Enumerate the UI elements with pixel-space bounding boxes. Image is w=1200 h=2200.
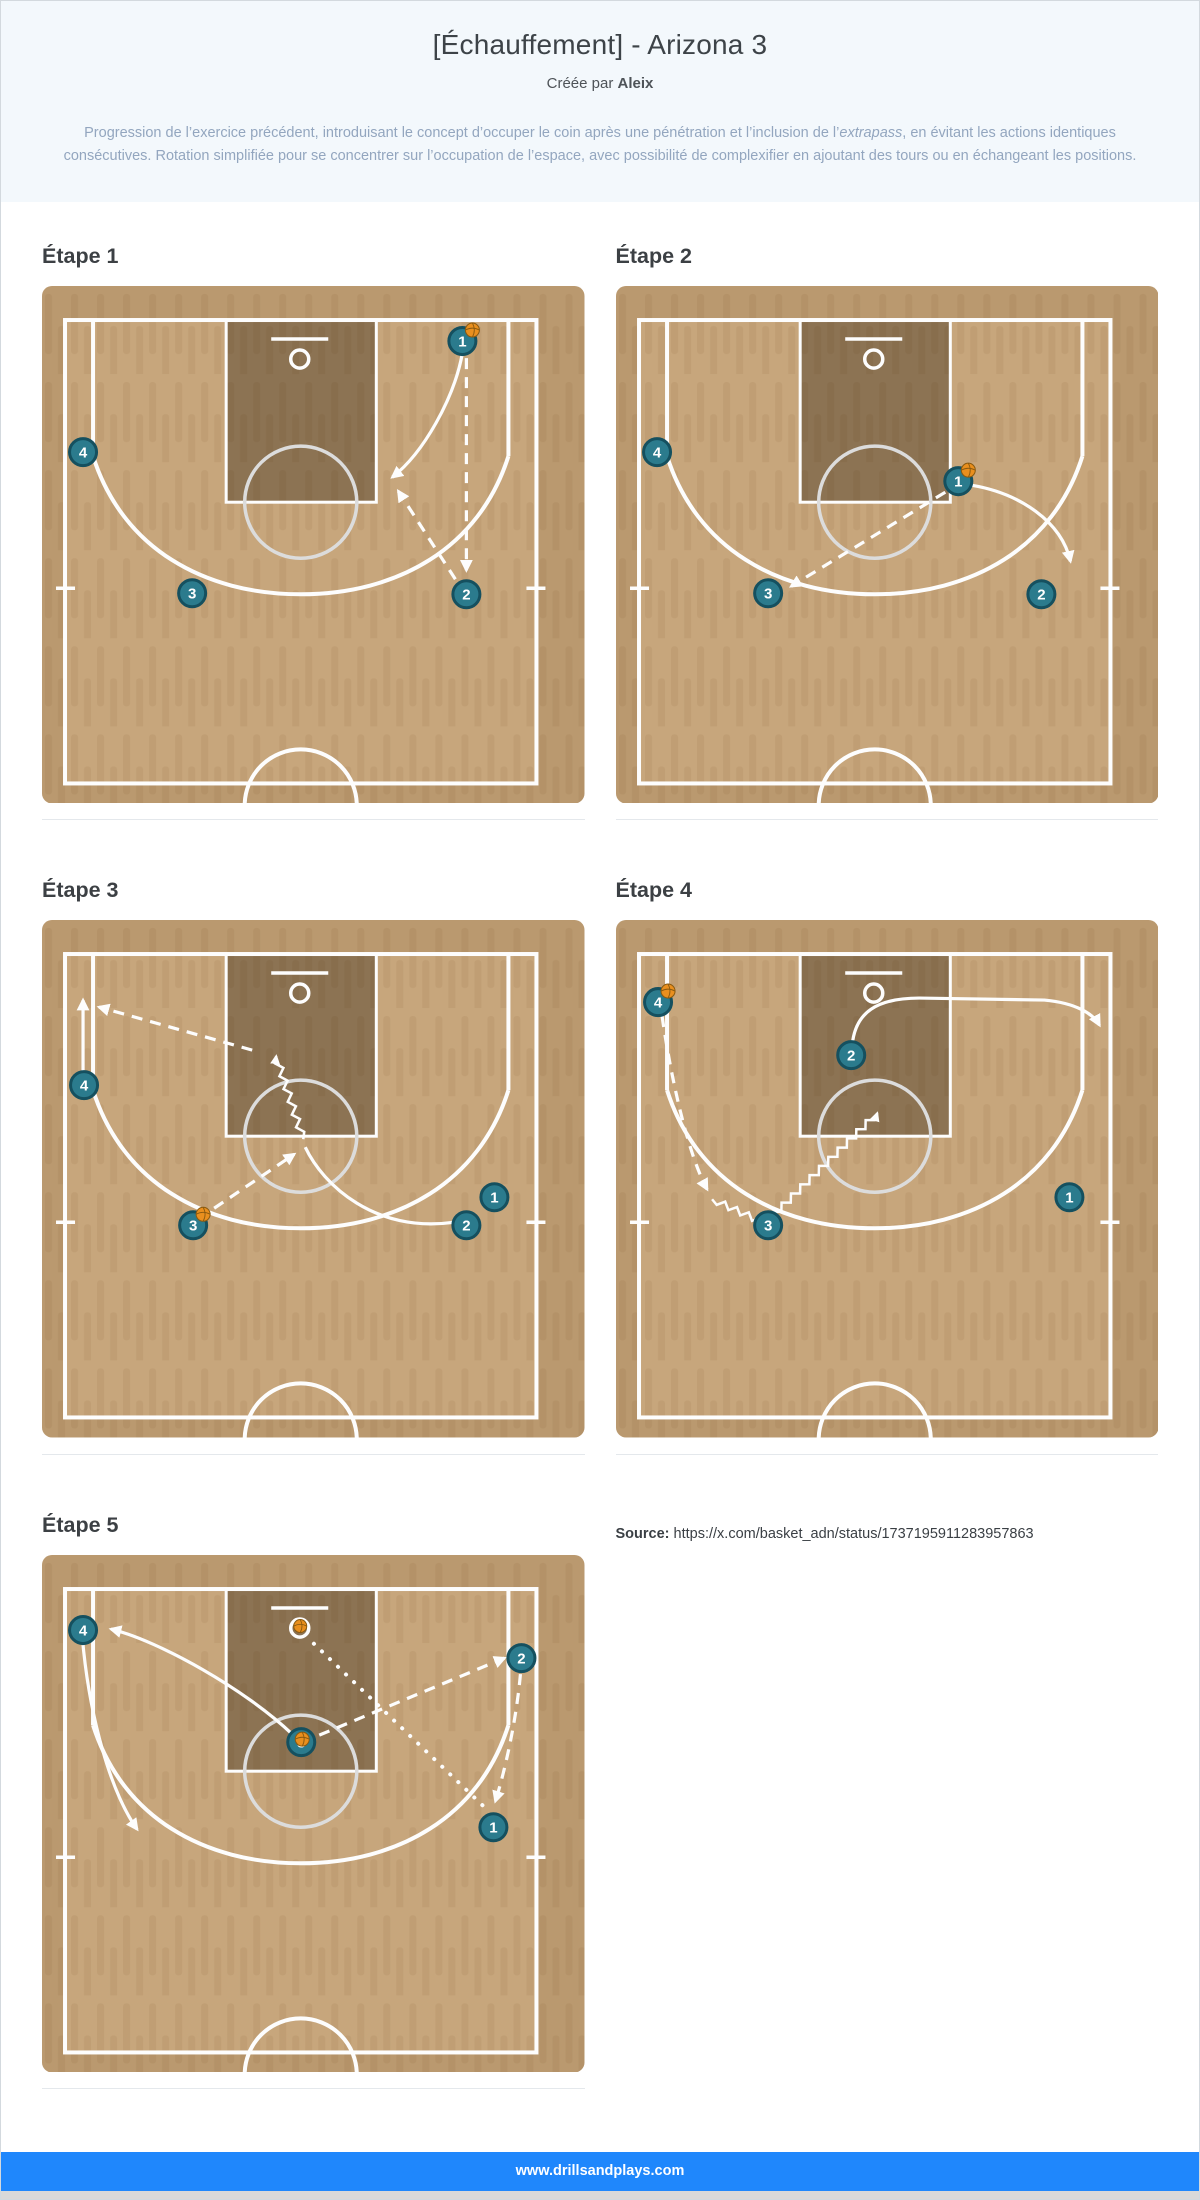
player-token-3: 3 [288,1729,315,1756]
player-token-1: 1 [1055,1184,1082,1211]
step-title: Étape 2 [616,243,1159,269]
court-diagram-etape-2: 4132 [616,286,1159,803]
painted-key [800,320,950,502]
footer-bar: www.drillsandplays.com [1,2152,1199,2191]
source-cell: Source: https://x.com/basket_adn/status/… [616,1455,1159,2089]
player-number: 4 [652,445,661,462]
step-etape-3: Étape 3 4312 [42,820,585,1454]
credit-line: Créée par Aleix [1,75,1199,93]
player-number: 1 [490,1190,498,1207]
player-number: 2 [462,1218,470,1235]
player-number: 4 [653,995,662,1012]
basketball-icon [961,463,975,477]
page-header: [Échauffement] - Arizona 3 Créée par Ale… [1,1,1199,202]
source-url[interactable]: https://x.com/basket_adn/status/17371959… [674,1526,1034,1542]
player-token-3: 3 [754,1212,781,1239]
step-title: Étape 3 [42,877,585,903]
court-diagram-etape-5: 4231 [42,1555,585,2072]
player-number: 1 [458,333,466,350]
basketball-icon [295,1732,309,1746]
page-title: [Échauffement] - Arizona 3 [1,28,1199,62]
step-etape-4: Étape 4 4231 [616,820,1159,1454]
basketball-icon [661,985,675,999]
description-part: Progression de l’exercice précédent, int… [84,125,839,141]
player-token-2: 2 [1027,581,1054,608]
step-etape-5: Étape 5 4231 [42,1455,585,2089]
step-title: Étape 4 [616,877,1159,903]
description-italic: extrapass [839,125,902,141]
player-number: 2 [517,1650,525,1667]
player-number: 4 [80,1078,89,1095]
basketball-icon [294,1619,307,1632]
court-diagram-etape-3: 4312 [42,920,585,1437]
player-number: 2 [1037,587,1045,604]
source-line: Source: https://x.com/basket_adn/status/… [616,1525,1159,1544]
player-number: 1 [489,1820,497,1837]
player-number: 1 [954,474,962,491]
player-number: 2 [462,587,470,604]
player-token-3: 3 [754,580,781,607]
player-token-4: 4 [70,1616,97,1643]
step-title: Étape 1 [42,243,585,269]
player-number: 4 [79,1622,88,1639]
player-number: 3 [189,1218,197,1235]
footer-strip [1,2191,1199,2199]
step-etape-1: Étape 1 1432 [42,202,585,820]
basketball-icon [465,323,479,337]
steps-grid: Étape 1 1432 Étape 2 4132 Étape 3 4312 É… [1,202,1199,2089]
court-diagram-etape-4: 4231 [616,920,1159,1437]
player-token-2: 2 [453,1212,480,1239]
court-diagram-etape-1: 1432 [42,286,585,803]
step-etape-2: Étape 2 4132 [616,202,1159,820]
step-title: Étape 5 [42,1512,585,1538]
credit-prefix: Créée par [547,75,614,92]
player-number: 2 [847,1048,855,1065]
painted-key [800,954,950,1136]
player-token-4: 4 [71,1072,98,1099]
divider [42,2088,585,2089]
player-token-3: 3 [179,580,206,607]
painted-key [226,954,376,1136]
player-token-2: 2 [453,581,480,608]
drill-description: Progression de l’exercice précédent, int… [58,122,1143,167]
player-number: 1 [1065,1190,1073,1207]
page-footer: www.drillsandplays.com [1,2152,1199,2199]
source-label: Source: [616,1526,670,1542]
footer-link[interactable]: www.drillsandplays.com [516,2163,685,2179]
player-token-4: 4 [643,439,670,466]
player-token-4: 4 [70,439,97,466]
player-token-2: 2 [837,1042,864,1069]
basketball-icon [196,1208,210,1222]
painted-key [226,320,376,502]
player-token-2: 2 [508,1645,535,1672]
player-number: 4 [79,445,88,462]
player-number: 3 [763,586,771,603]
player-token-1: 1 [480,1814,507,1841]
credit-name: Aleix [618,75,654,92]
player-token-1: 1 [481,1184,508,1211]
player-number: 3 [763,1218,771,1235]
player-number: 3 [188,586,196,603]
